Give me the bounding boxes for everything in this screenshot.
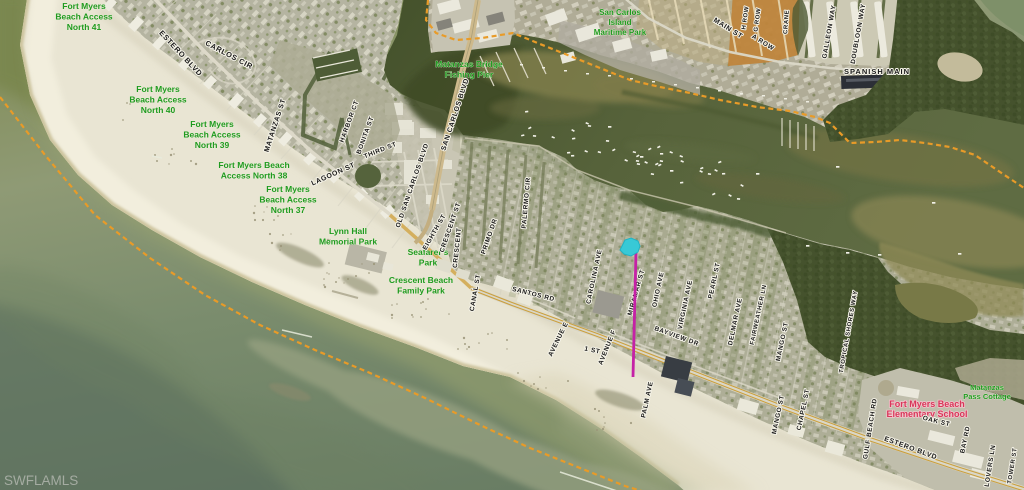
svg-text:Maritime Park: Maritime Park <box>594 28 647 37</box>
svg-text:Matanzas: Matanzas <box>970 383 1004 392</box>
svg-text:Beach Access: Beach Access <box>55 12 113 22</box>
svg-text:Lynn Hall: Lynn Hall <box>329 226 367 236</box>
svg-text:Fort Myers: Fort Myers <box>62 1 106 11</box>
svg-text:Fishing Pier: Fishing Pier <box>445 70 494 80</box>
svg-text:North 37: North 37 <box>271 205 306 215</box>
svg-text:Crescent Beach: Crescent Beach <box>389 275 453 285</box>
svg-text:Island: Island <box>608 18 631 27</box>
svg-text:Fort Myers: Fort Myers <box>266 184 310 194</box>
svg-text:SPANISH MAIN: SPANISH MAIN <box>844 67 910 76</box>
svg-text:North 41: North 41 <box>67 22 102 32</box>
svg-text:Beach Access: Beach Access <box>259 195 317 205</box>
svg-text:North 40: North 40 <box>141 105 176 115</box>
svg-text:Beach Access: Beach Access <box>129 95 187 105</box>
svg-text:Fort Myers: Fort Myers <box>136 84 180 94</box>
svg-text:SWFLAMLS: SWFLAMLS <box>4 473 78 488</box>
svg-text:Access North 38: Access North 38 <box>221 171 288 181</box>
svg-text:Pass Cottage: Pass Cottage <box>963 392 1011 401</box>
svg-text:Fort Myers Beach: Fort Myers Beach <box>218 160 289 170</box>
svg-text:Fort Myers: Fort Myers <box>190 119 234 129</box>
svg-text:Park: Park <box>419 258 438 268</box>
svg-text:Family Park: Family Park <box>397 286 445 296</box>
svg-text:Fort Myers Beach: Fort Myers Beach <box>889 399 965 409</box>
svg-text:North 39: North 39 <box>195 140 230 150</box>
svg-text:Matanzas Bridge: Matanzas Bridge <box>435 59 503 69</box>
svg-text:Beach Access: Beach Access <box>183 130 241 140</box>
svg-text:Memorial Park: Memorial Park <box>319 237 377 247</box>
svg-text:San Carlos: San Carlos <box>599 8 641 17</box>
